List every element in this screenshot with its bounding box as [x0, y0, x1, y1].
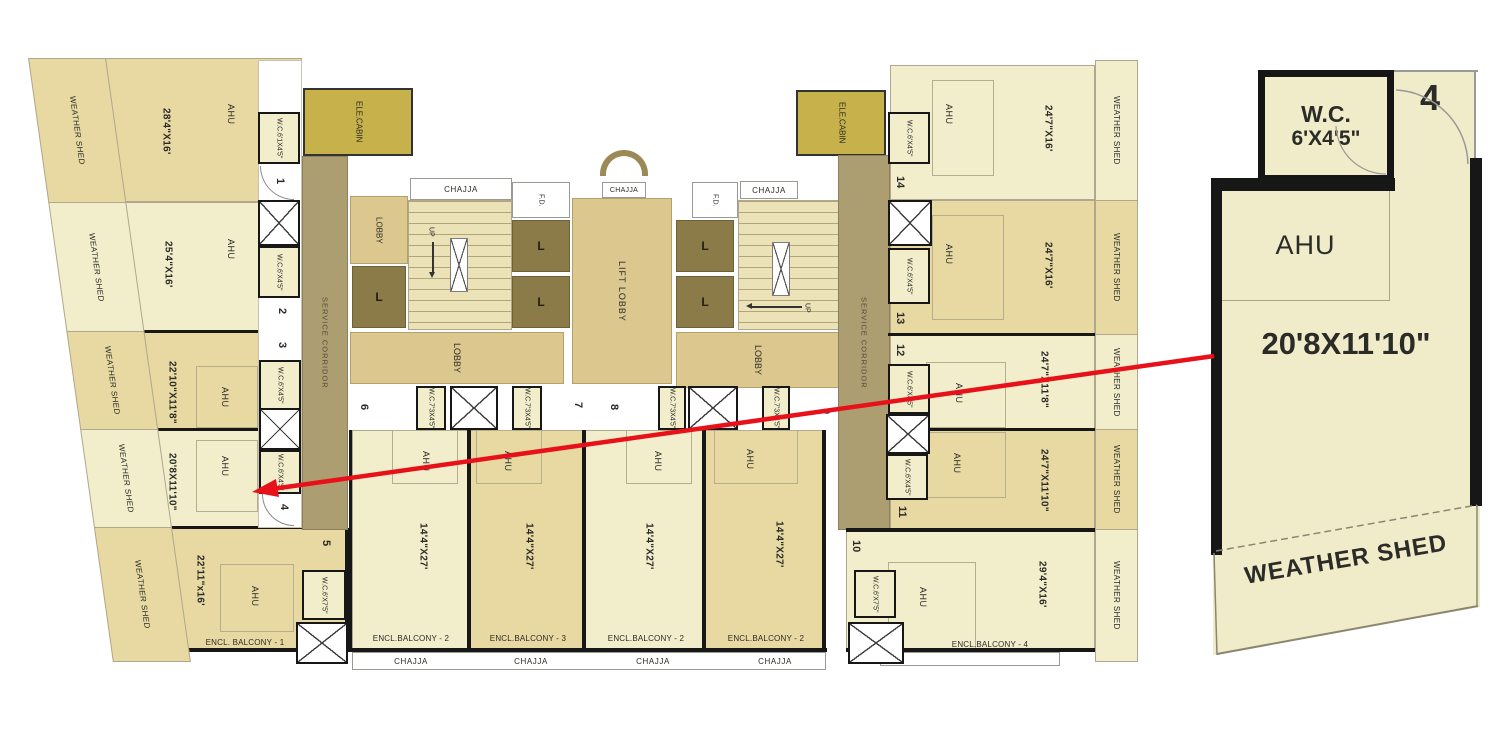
unit-4-wc: W.C. 6'X4'5": [259, 450, 301, 494]
unit-2-number: 2: [274, 300, 290, 322]
unit-14-ahu-label: AHU: [940, 94, 958, 134]
fd-label: F.D.: [712, 194, 719, 206]
wc-size: 6'1X4'5": [274, 133, 283, 158]
unit-7-size: 14'4"X27': [520, 512, 538, 580]
unit-10-number: 10: [848, 534, 864, 558]
unit-13-ahu-label: AHU: [940, 234, 958, 274]
stair-arrow-line: [752, 306, 802, 308]
wc-label: W.C.: [275, 454, 284, 469]
wc-label: W.C.: [275, 367, 284, 382]
weather-shed-cell: WEATHER SHED: [1095, 335, 1138, 430]
stair-arrow-head: [746, 303, 752, 309]
wc-size: 6'X7'5": [870, 591, 879, 613]
wc-label: W.C.: [771, 388, 780, 403]
weather-shed-label: WEATHER SHED: [1112, 561, 1121, 630]
lift-lobby-label: LIFT LOBBY: [617, 261, 627, 322]
unit-5-ahu-label: AHU: [246, 576, 264, 616]
wall: [349, 430, 352, 650]
wc-label: W.C.: [902, 459, 911, 474]
unit-6-wc: W.C. 7'3X4'5": [416, 386, 446, 430]
wc-size: 7'3X4'5": [667, 403, 676, 428]
wc-label: W.C.: [274, 254, 283, 269]
wall: [888, 333, 1096, 336]
unit-11-ahu-label: AHU: [948, 444, 966, 482]
unit-5-balcony-label: ENCL. BALCONY - 1: [190, 636, 300, 648]
lift-label: L: [701, 239, 708, 253]
service-corridor-label: SERVICE CORRIDOR: [860, 297, 869, 389]
unit-7-wc: W.C. 7'3X4'5": [512, 386, 542, 430]
duct-shaft: [296, 622, 348, 664]
weather-shed-label: WEATHER SHED: [1112, 348, 1121, 417]
lift-shaft: L: [352, 266, 406, 328]
unit-8-ahu-label: AHU: [650, 442, 666, 480]
stair-arrow-line: [432, 242, 434, 272]
chajja-notch: [880, 652, 1060, 666]
weather-shed-label: WEATHER SHED: [87, 233, 106, 302]
up-label: UP: [800, 298, 814, 318]
lobby-label: LOBBY: [753, 345, 763, 375]
chajja-label: CHAJJA: [444, 185, 478, 194]
chajja-box-right: CHAJJA: [740, 181, 798, 199]
lift-shaft: L: [676, 220, 734, 272]
lobby-small: LOBBY: [350, 196, 408, 264]
wall: [582, 430, 586, 650]
detail-thin-line: [1394, 70, 1478, 72]
unit-12-wc: W.C. 6'X4'5": [888, 364, 930, 414]
chajja-label: CHAJJA: [752, 186, 786, 195]
unit-8-balcony-label: ENCL.BALCONY - 2: [598, 632, 694, 644]
wc-size: 7'3X4'5": [522, 403, 531, 428]
unit-5-size: 22'11"x16': [190, 546, 210, 614]
wc-label: W.C.: [904, 371, 913, 386]
chajja-label: CHAJJA: [744, 655, 806, 667]
lift-shaft: L: [512, 276, 570, 328]
wc-size: 7'3X4'5": [426, 403, 435, 428]
service-corridor-right: SERVICE CORRIDOR: [838, 155, 890, 530]
unit-8-number: 8: [606, 396, 622, 418]
weather-shed-label: WEATHER SHED: [117, 444, 136, 513]
wc-size: 6'X4'5": [904, 135, 913, 157]
lobby-bar-right: LOBBY: [676, 332, 840, 388]
unit-14-wc: W.C. 6'X4'5": [888, 112, 930, 164]
unit-12-size: 24'7"X11'8": [1034, 348, 1054, 412]
unit-1-ahu-label: AHU: [222, 92, 240, 136]
detail-ahu-box: AHU: [1222, 191, 1390, 301]
unit-7-ahu-label: AHU: [500, 442, 516, 480]
unit-9-balcony-label: ENCL.BALCONY - 2: [716, 632, 816, 644]
fd-label: F.D.: [538, 194, 545, 206]
weather-shed-label: WEATHER SHED: [68, 96, 87, 165]
detail-left-wall: [1211, 190, 1222, 555]
unit-7-number: 7: [570, 394, 586, 416]
detail-thin-line: [1474, 70, 1476, 162]
unit-11-size: 24'7"X11'10": [1034, 444, 1054, 516]
weather-shed-label: WEATHER SHED: [1112, 233, 1121, 302]
unit-2-ahu-label: AHU: [222, 228, 240, 270]
detail-top-wall: [1211, 178, 1395, 191]
unit-12-number: 12: [892, 338, 908, 362]
wall: [702, 430, 706, 650]
wc-size: 6'X4'5": [904, 386, 913, 408]
fire-duct-right: F.D.: [692, 182, 738, 218]
unit-13-number: 13: [892, 306, 908, 330]
lift-shaft: L: [676, 276, 734, 328]
unit-5-wc: W.C. 6'X7'5": [302, 570, 346, 620]
unit-9-number: 9: [818, 400, 834, 422]
unit-6-number: 6: [356, 396, 372, 418]
chajja-box-left: CHAJJA: [410, 178, 512, 200]
stair-stringer: [772, 242, 790, 296]
detail-right-wall: [1470, 158, 1482, 506]
unit-6-balcony-label: ENCL.BALCONY - 2: [362, 632, 460, 644]
unit-9-ahu-label: AHU: [742, 440, 758, 478]
unit-10-size: 29'4"X16': [1032, 552, 1052, 616]
weather-shed-label: WEATHER SHED: [1112, 445, 1121, 514]
weather-shed-column-right: WEATHER SHED WEATHER SHED WEATHER SHED W…: [1095, 60, 1138, 662]
weather-shed-cell: WEATHER SHED: [80, 430, 172, 528]
unit-4-number: 4: [276, 496, 292, 518]
ele-cabin-line2: CABIN: [836, 119, 847, 143]
lobby-label: LOBBY: [375, 217, 384, 244]
wc-size: 6'X4'5": [274, 269, 283, 291]
unit-2-wc: W.C. 6'X4'5": [258, 246, 300, 298]
duct-shaft: [848, 622, 904, 664]
unit-1-size: 28'4"X16': [156, 98, 176, 164]
unit-3-wc: W.C. 6'X4'5": [259, 360, 301, 410]
ele-cabin-line1: ELE.: [353, 101, 364, 118]
unit-5-number: 5: [318, 532, 334, 554]
detail-ahu-label: AHU: [1275, 230, 1335, 261]
lobby-bar-left: LOBBY: [350, 332, 564, 384]
unit-8-size: 14'4"X27': [640, 512, 658, 580]
detail-room-size: 20'8X11'10": [1240, 322, 1452, 366]
unit-10-wc: W.C. 6'X7'5": [854, 570, 896, 618]
lift-label: L: [701, 295, 708, 309]
duct-shaft: [888, 200, 932, 246]
wc-size: 7'3X4'5": [771, 403, 780, 428]
wall: [846, 528, 1096, 532]
wc-label: W.C.: [426, 388, 435, 403]
unit-3-ahu-label: AHU: [216, 376, 234, 418]
wc-label: W.C.: [274, 118, 283, 133]
unit-14-size: 24'7"X16': [1038, 98, 1058, 158]
unit-11-number: 11: [894, 500, 910, 524]
unit-1-number: 1: [272, 170, 288, 192]
lift-label: L: [375, 290, 382, 304]
chajja-label: CHAJJA: [622, 655, 684, 667]
wall: [822, 430, 826, 650]
weather-shed-cell: WEATHER SHED: [1095, 530, 1138, 662]
ele-cabin-line2: CABIN: [353, 118, 364, 142]
duct-shaft: [258, 200, 300, 246]
weather-shed-cell: WEATHER SHED: [67, 332, 159, 430]
unit-9-wc: W.C. 7'3X4'5": [762, 386, 790, 430]
ele-cabin-line1: ELE.: [836, 102, 847, 119]
weather-shed-cell: WEATHER SHED: [1095, 430, 1138, 530]
unit-9-size: 14'4"X27': [770, 510, 788, 578]
wall: [467, 430, 471, 650]
wc-size: 6'X4'5": [904, 273, 913, 295]
unit-14-number: 14: [892, 170, 908, 194]
up-label: UP: [424, 222, 438, 242]
weather-shed-label: WEATHER SHED: [1112, 96, 1121, 165]
wc-size: 6'X4'5": [902, 474, 911, 496]
chajja-box-arch: CHAJJA: [602, 182, 646, 198]
unit-6-size: 14'4"X27': [414, 512, 432, 580]
unit-11-wc: W.C. 6'X4'5": [886, 454, 928, 500]
duct-shaft: [450, 386, 498, 430]
weather-shed-label: WEATHER SHED: [133, 560, 152, 629]
weather-shed-label: WEATHER SHED: [103, 346, 122, 415]
lift-label: L: [537, 295, 544, 309]
unit-2-size: 25'4"X16': [158, 232, 178, 296]
unit-8-wc: W.C. 7'3X4'5": [658, 386, 686, 430]
lift-label: L: [537, 239, 544, 253]
unit-3-number: 3: [274, 334, 290, 356]
duct-shaft: [886, 414, 930, 454]
unit-6-ahu-label: AHU: [418, 442, 434, 480]
duct-shaft: [688, 386, 738, 430]
ele-cabin-left: ELE. CABIN: [303, 88, 413, 156]
chajja-label: CHAJJA: [380, 655, 442, 667]
unit-13-wc: W.C. 6'X4'5": [888, 248, 930, 304]
ele-cabin-right: ELE. CABIN: [796, 90, 886, 156]
unit-11-ahu-box: [926, 432, 1006, 498]
unit-1-wc: W.C. 6'1X4'5": [258, 112, 300, 164]
service-corridor-left: SERVICE CORRIDOR: [302, 156, 348, 530]
weather-shed-cell: WEATHER SHED: [1095, 60, 1138, 201]
unit-7-balcony-label: ENCL.BALCONY - 3: [480, 632, 576, 644]
detail-unit-number: 4: [1408, 76, 1452, 120]
detail-wc-size: 6'X4'5": [1292, 127, 1361, 151]
fire-duct-left: F.D.: [512, 182, 570, 218]
chajja-label: CHAJJA: [610, 187, 638, 194]
wc-label: W.C.: [904, 258, 913, 273]
detail-wc-room: W.C. 6'X4'5": [1258, 70, 1394, 182]
unit-12-ahu-label: AHU: [950, 374, 968, 412]
service-corridor-label: SERVICE CORRIDOR: [321, 297, 330, 389]
unit-3-size: 22'10"X11'8": [162, 352, 182, 432]
wc-label: W.C.: [870, 576, 879, 591]
unit-13-size: 24'7"X16': [1038, 234, 1058, 296]
wc-label: W.C.: [667, 388, 676, 403]
floor-plan-canvas: AHU 28'4"X16' AHU 25'4"X16' AHU 22'10"X1…: [0, 0, 1500, 732]
lift-shaft: L: [512, 220, 570, 272]
wc-size: 6'X4'5": [275, 382, 284, 404]
unit-4-ahu-label: AHU: [216, 446, 234, 486]
chajja-label: CHAJJA: [500, 655, 562, 667]
lobby-label: LOBBY: [452, 343, 462, 373]
detail-wc-label: W.C.: [1301, 101, 1351, 127]
weather-shed-cell: WEATHER SHED: [1095, 201, 1138, 336]
wc-size: 6'X7'5": [319, 592, 328, 614]
wc-size: 6'X4'5": [275, 469, 284, 491]
stair-stringer: [450, 238, 468, 292]
duct-shaft: [259, 408, 301, 450]
stair-arrow-head: [429, 272, 435, 278]
wc-label: W.C.: [904, 120, 913, 135]
entrance-arch: [600, 150, 648, 176]
wc-label: W.C.: [319, 577, 328, 592]
wc-label: W.C.: [522, 388, 531, 403]
unit-10-ahu-label: AHU: [914, 578, 932, 616]
lift-lobby: LIFT LOBBY: [572, 198, 672, 384]
